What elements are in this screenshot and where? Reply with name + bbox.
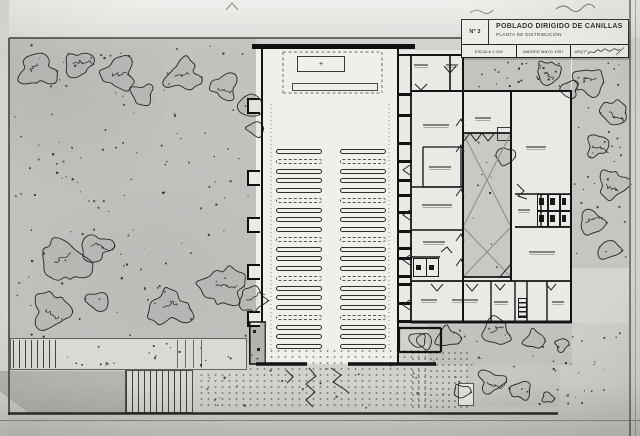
pew-bench — [276, 227, 322, 232]
room-label — [494, 301, 508, 303]
room-label — [452, 299, 478, 301]
pier-dot — [257, 348, 260, 351]
room-label — [475, 117, 491, 119]
pew-bench — [276, 276, 322, 281]
room-label — [422, 204, 452, 206]
wc-cell — [560, 194, 571, 211]
pew-bench — [340, 295, 386, 300]
architect-cell: ARQTº — [571, 45, 628, 57]
pew-bench — [340, 198, 386, 203]
wc-fixture — [539, 215, 544, 222]
confessional-niche — [247, 217, 260, 233]
cell-wall-stub — [398, 247, 412, 250]
confessional-niche — [247, 98, 260, 114]
shrub-band-lower — [466, 365, 560, 407]
pew-bench — [340, 276, 386, 281]
stair-band-upper — [10, 338, 247, 370]
pew-bench — [276, 149, 322, 154]
cell-wall-stub — [398, 302, 412, 305]
cell-wall-stub — [398, 179, 412, 182]
pew-bench — [340, 344, 386, 349]
wc-cell — [548, 194, 559, 211]
garden-strip-top-right — [463, 58, 571, 91]
cell-wall-stub — [398, 275, 412, 278]
pew-bench — [276, 266, 322, 271]
pew-bench — [340, 305, 386, 310]
title-cell: POBLADO DIRIGIDO DE CANILLAS PLANTA DE D… — [489, 20, 628, 44]
altar-platform: + — [297, 56, 345, 72]
pew-bench — [276, 334, 322, 339]
pier-dot — [253, 330, 256, 333]
pew-bench — [276, 188, 322, 193]
pew-bench — [276, 237, 322, 242]
stair-hatch — [13, 340, 60, 368]
wc-cell — [548, 211, 559, 228]
pew-bench — [276, 325, 322, 330]
confessional-niche — [247, 311, 260, 327]
room-label — [552, 301, 564, 303]
room-label — [429, 166, 451, 168]
garden-area-left — [9, 38, 256, 345]
cell-wall-stub — [398, 211, 412, 214]
room-label — [446, 64, 458, 66]
confessional-niche — [247, 170, 260, 186]
pew-bench — [276, 169, 322, 174]
room-label — [518, 209, 530, 211]
room-label — [529, 251, 555, 253]
pew-bench — [276, 295, 322, 300]
cell-wall-stub — [398, 194, 412, 197]
wc-cell — [560, 211, 571, 228]
pew-bench — [340, 208, 386, 213]
communion-rail — [292, 83, 378, 91]
wc-fixture — [550, 215, 555, 222]
pew-bench — [340, 178, 386, 183]
cell-wall-stub — [398, 160, 412, 163]
pew-bench — [276, 178, 322, 183]
scale-cell: ESCALA 1:100 — [462, 45, 517, 57]
wc-cell — [537, 194, 548, 211]
wc-fixture — [539, 198, 544, 205]
pew-bench — [276, 305, 322, 310]
pew-bench — [276, 217, 322, 222]
garden-band-right — [572, 38, 630, 268]
toilet-stalls — [537, 194, 571, 227]
baptistery-pier — [249, 322, 266, 364]
scanned-floor-plan-photo: + Nº 3 POBLADO DIRIGIDO DE CANILLAS PLAN… — [0, 0, 640, 436]
cell-wall-stub — [398, 283, 412, 286]
pew-bench — [340, 315, 386, 320]
ramp-shadow — [0, 371, 125, 414]
cell-wall-stub — [398, 320, 412, 323]
pew-bench — [276, 247, 322, 252]
pew-bench — [340, 325, 386, 330]
pew-bench — [276, 198, 322, 203]
pew-bench — [340, 149, 386, 154]
cell-wall-stub — [398, 114, 412, 117]
pew-bench — [340, 159, 386, 164]
small-stair-fixture — [518, 298, 527, 318]
place-date-cell: MADRID MAYO 1957 — [517, 45, 572, 57]
room-label — [421, 299, 437, 301]
room-label — [423, 241, 445, 243]
kitchen-appliance — [416, 265, 421, 270]
pew-bench — [340, 256, 386, 261]
wc-fixture — [562, 215, 567, 222]
room-label — [526, 146, 546, 148]
tree-canopy — [409, 334, 425, 348]
pew-bench — [276, 286, 322, 291]
architect-signature — [586, 46, 626, 56]
wc-fixture — [562, 198, 567, 205]
pew-bench — [340, 334, 386, 339]
confessional-niche — [247, 264, 260, 280]
title-block-top-row: Nº 3 POBLADO DIRIGIDO DE CANILLAS PLANTA… — [462, 20, 628, 45]
pew-bench — [340, 227, 386, 232]
pew-bench — [340, 217, 386, 222]
cell-wall-stub — [398, 230, 412, 233]
cell-wall-stub — [398, 142, 412, 145]
cell-wall-stub — [398, 257, 412, 260]
stair-hatch — [177, 340, 203, 368]
project-title: POBLADO DIRIGIDO DE CANILLAS — [496, 23, 628, 30]
entry-step — [458, 383, 474, 406]
pew-bench — [276, 208, 322, 213]
pew-bench — [276, 256, 322, 261]
sheet-number-cell: Nº 3 — [462, 20, 489, 44]
pew-bench — [340, 237, 386, 242]
altar-cross-icon: + — [319, 61, 323, 68]
drawing-title: PLANTA DE DISTRIBUCIÓN — [496, 32, 628, 37]
pew-bench — [276, 315, 322, 320]
wc-fixture — [550, 198, 555, 205]
title-block-bottom-row: ESCALA 1:100 MADRID MAYO 1957 ARQTº — [462, 45, 628, 57]
pew-bench — [276, 344, 322, 349]
wc-cell — [537, 211, 548, 228]
pew-bench — [276, 159, 322, 164]
pew-bench — [340, 286, 386, 291]
stair-band-lower — [125, 370, 193, 413]
kitchen-appliance — [429, 265, 434, 270]
title-block: Nº 3 POBLADO DIRIGIDO DE CANILLAS PLANTA… — [461, 19, 629, 58]
photo-left-margin — [0, 0, 9, 436]
kitchen-divider — [426, 259, 427, 276]
courtyard-planter — [497, 127, 511, 141]
room-label — [414, 64, 428, 66]
cell-wall-stub — [398, 93, 412, 96]
courtyard-patio — [463, 133, 511, 277]
pew-bench — [340, 266, 386, 271]
pew-bench — [340, 169, 386, 174]
pew-bench — [340, 247, 386, 252]
kitchen-fixtures — [413, 258, 439, 277]
room-label — [423, 124, 449, 126]
pew-bench — [340, 188, 386, 193]
